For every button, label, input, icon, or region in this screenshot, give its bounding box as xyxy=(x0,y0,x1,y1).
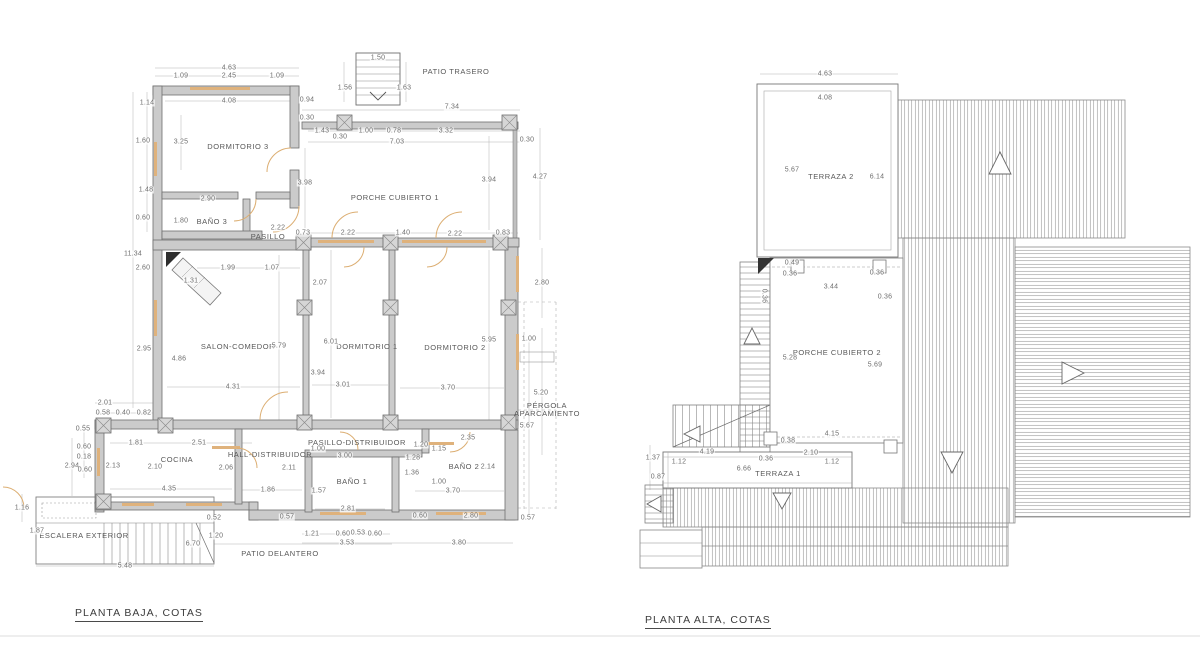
ground-floor-plan xyxy=(3,53,556,566)
small-side-stair xyxy=(645,485,673,523)
lower-stair-block xyxy=(673,405,770,447)
pergola-post xyxy=(520,352,554,362)
porche-cubierto-2 xyxy=(758,258,903,453)
upper-floor-plan xyxy=(640,74,1190,568)
fireplace xyxy=(166,252,221,305)
roof-right xyxy=(1015,247,1190,517)
roof-center xyxy=(903,238,1015,523)
blueprint-sheet: PLANTA BAJA, COTAS PLANTA ALTA, COTAS PA… xyxy=(0,0,1200,647)
ground-floor-title: PLANTA BAJA, COTAS xyxy=(75,607,203,622)
roof-lower-band xyxy=(663,488,1008,527)
roof-bottom-band xyxy=(702,527,1008,566)
back-patio-stairs xyxy=(356,53,400,105)
upper-floor-title: PLANTA ALTA, COTAS xyxy=(645,614,771,629)
bottom-left-landing xyxy=(640,530,702,568)
pergola-outline xyxy=(518,302,556,512)
roof-top-right xyxy=(898,100,1125,238)
floor-plan-svg xyxy=(0,0,1200,647)
terraza-1 xyxy=(663,452,852,488)
terraza-2 xyxy=(757,84,898,257)
